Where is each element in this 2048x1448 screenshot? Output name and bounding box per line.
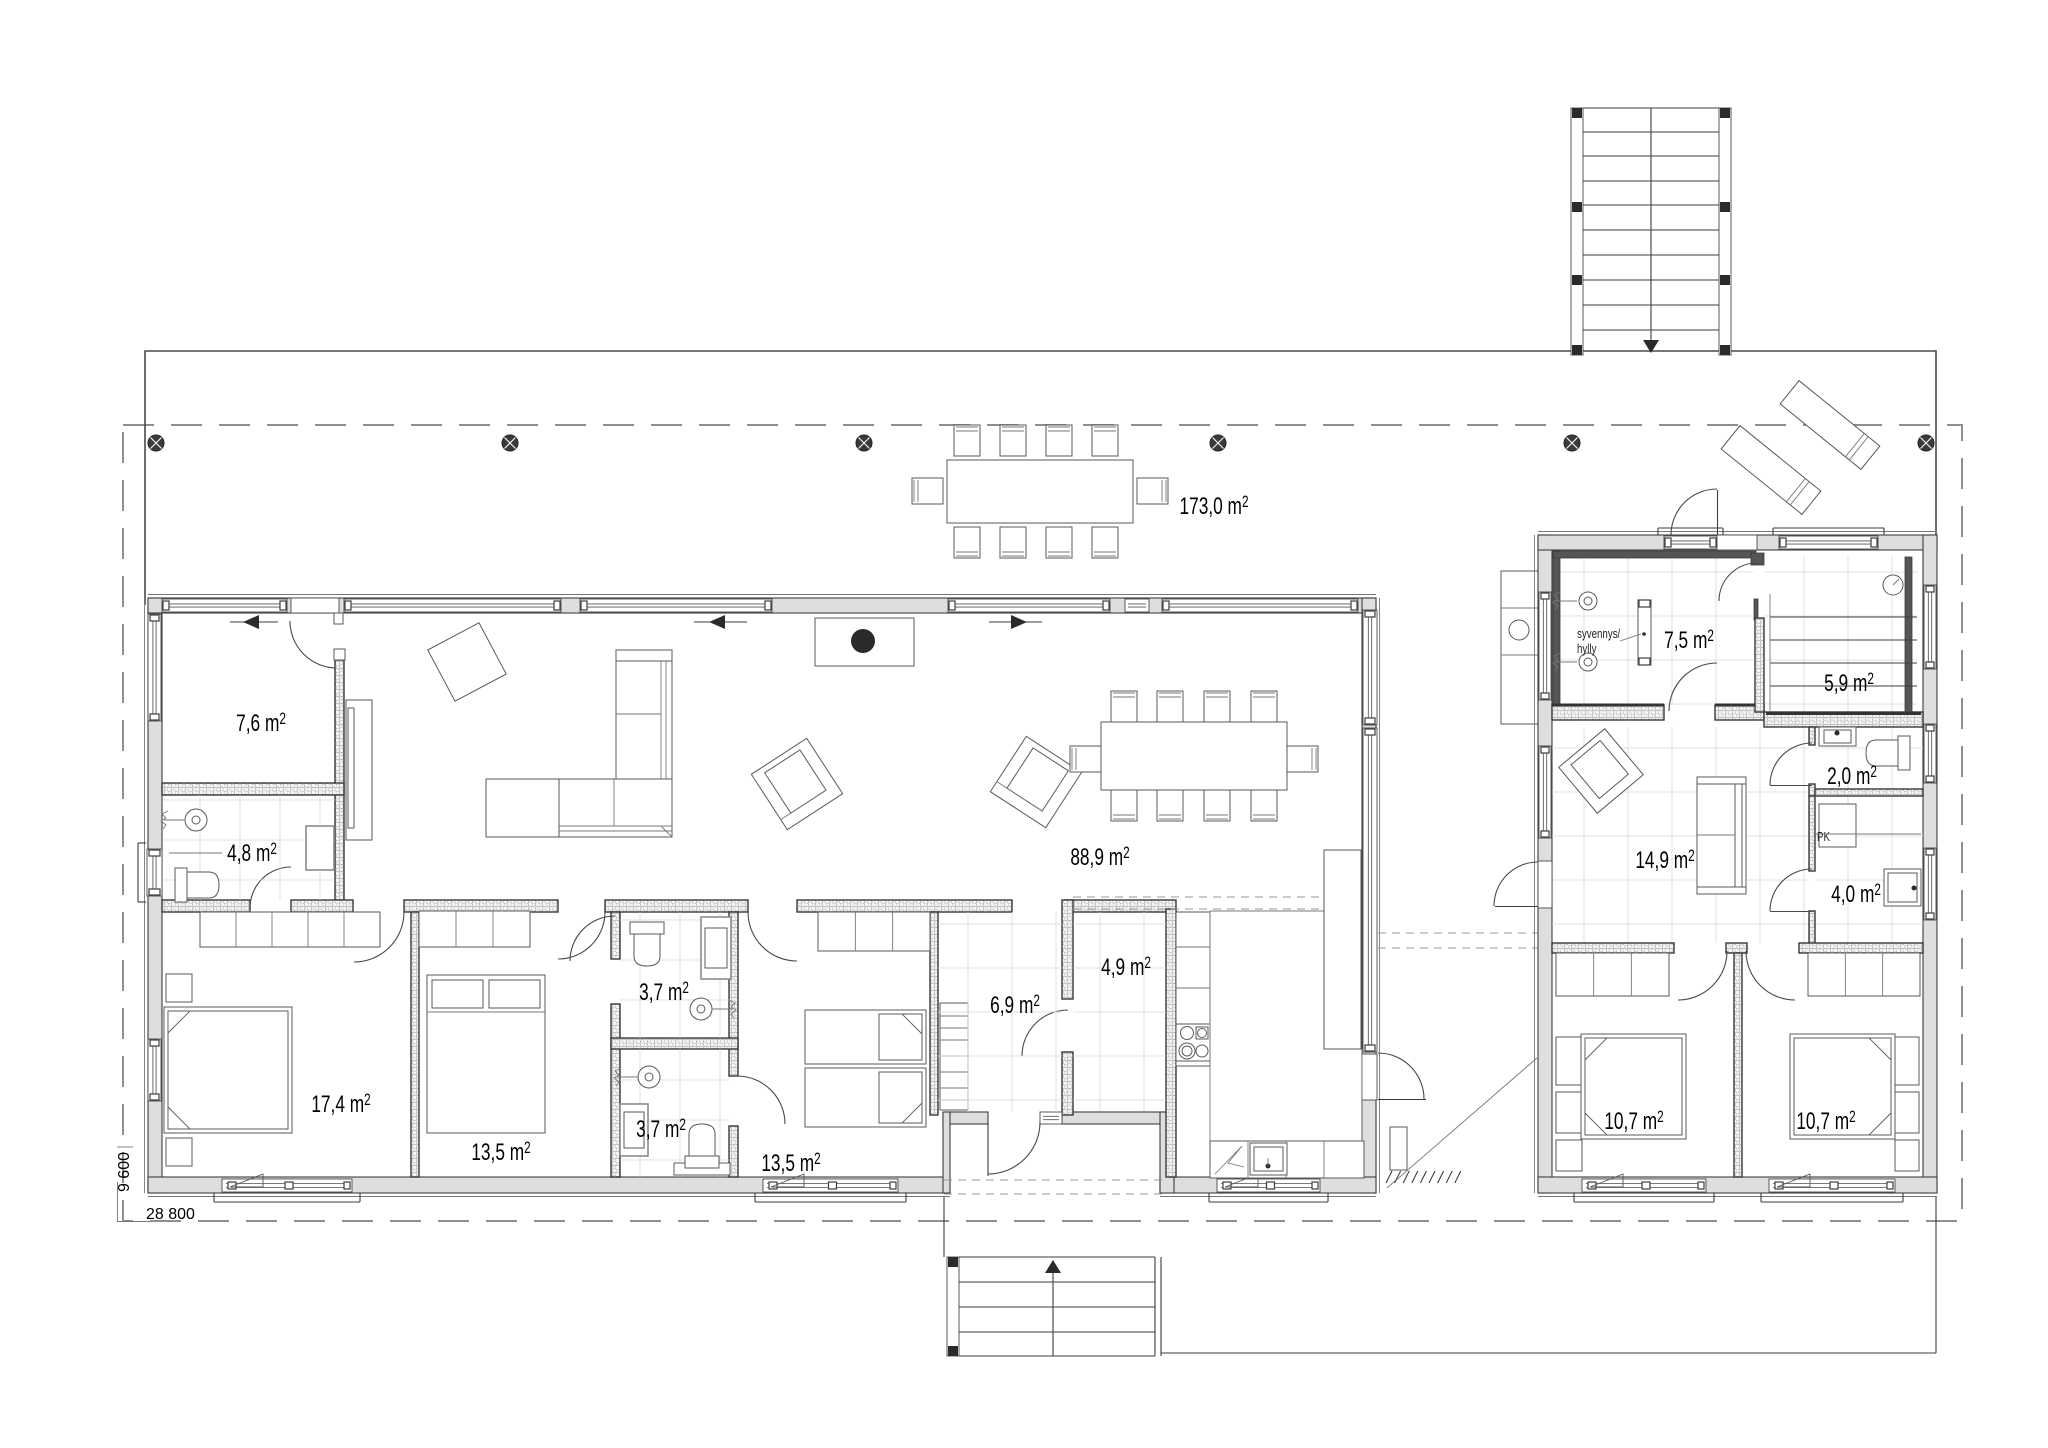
- svg-text:4,0 m2: 4,0 m2: [1831, 881, 1881, 908]
- svg-text:13,5 m2: 13,5 m2: [471, 1139, 530, 1166]
- svg-text:13,5 m2: 13,5 m2: [761, 1150, 820, 1177]
- svg-text:5,9 m2: 5,9 m2: [1824, 670, 1874, 697]
- svg-text:hylly: hylly: [1577, 643, 1597, 656]
- svg-text:4,9 m2: 4,9 m2: [1101, 954, 1151, 981]
- svg-text:173,0 m2: 173,0 m2: [1180, 493, 1249, 520]
- svg-text:PK: PK: [1817, 831, 1830, 844]
- svg-text:3,7 m2: 3,7 m2: [636, 1116, 686, 1143]
- svg-text:28 800: 28 800: [146, 1206, 195, 1223]
- svg-text:2,0 m2: 2,0 m2: [1827, 763, 1877, 790]
- svg-text:10,7 m2: 10,7 m2: [1796, 1108, 1855, 1135]
- svg-text:7,6 m2: 7,6 m2: [236, 710, 286, 737]
- svg-text:14,9 m2: 14,9 m2: [1635, 847, 1694, 874]
- svg-text:9 600: 9 600: [116, 1152, 133, 1192]
- svg-text:3,7 m2: 3,7 m2: [639, 979, 689, 1006]
- svg-text:10,7 m2: 10,7 m2: [1604, 1108, 1663, 1135]
- svg-text:7,5 m2: 7,5 m2: [1664, 627, 1714, 654]
- svg-text:17,4 m2: 17,4 m2: [311, 1091, 370, 1118]
- svg-text:88,9 m2: 88,9 m2: [1070, 844, 1129, 871]
- svg-text:4,8 m2: 4,8 m2: [227, 840, 277, 867]
- svg-text:syvennys/: syvennys/: [1577, 628, 1621, 641]
- svg-text:6,9 m2: 6,9 m2: [990, 992, 1040, 1019]
